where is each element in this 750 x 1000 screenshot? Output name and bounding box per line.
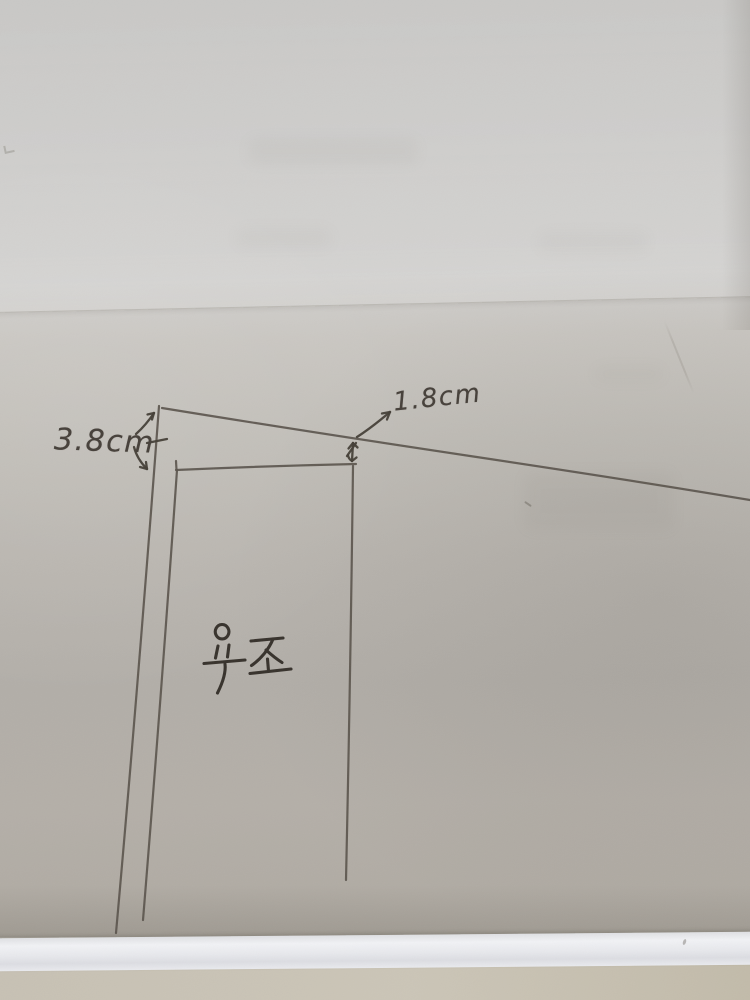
pencil-sketch-drawing: [0, 0, 750, 1000]
bathtub-top-line: [176, 464, 356, 470]
outer-left-line: [116, 406, 159, 933]
arrowhead: [146, 462, 147, 469]
paper-edge-band: [0, 932, 750, 972]
top-dimension-marks: [347, 412, 390, 461]
photo-of-pencil-sketch: 3.8cm 1.8cm: [0, 0, 750, 1000]
bathtub-label-handwriting: [204, 625, 291, 694]
bathtub-right-line: [346, 466, 353, 880]
top-slanted-line: [162, 408, 750, 500]
bathtub-corner-tick: [176, 461, 177, 470]
top-dim-arrow: [357, 412, 390, 437]
dimension-label-left: 3.8cm: [53, 422, 155, 461]
